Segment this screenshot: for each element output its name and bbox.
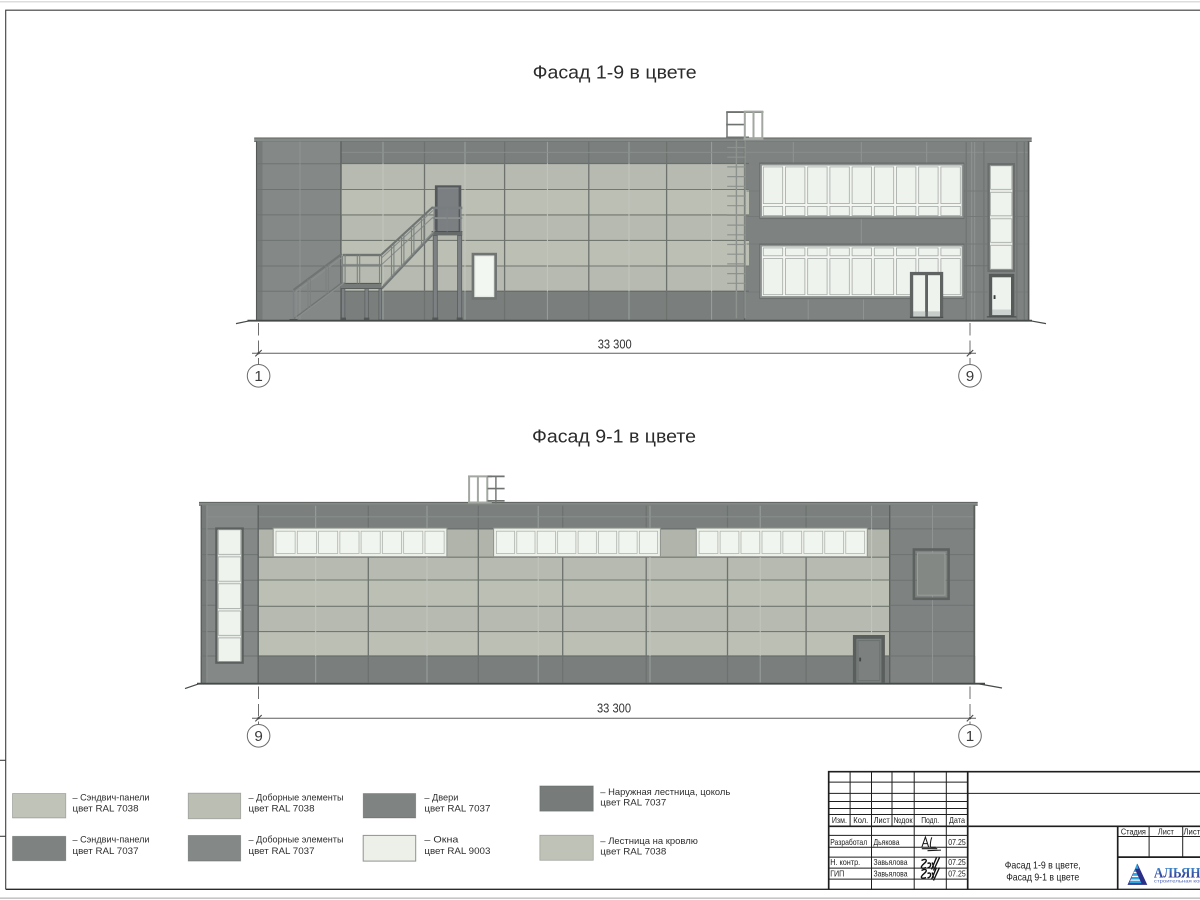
svg-text:Дьякова: Дьякова [874, 838, 900, 847]
svg-text:– Доборные элементы: – Доборные элементы [249, 792, 344, 802]
svg-text:Кол.: Кол. [853, 815, 868, 825]
svg-text:Лист: Лист [1158, 826, 1174, 836]
svg-text:Подп.: Подп. [921, 815, 939, 825]
svg-text:Фасад 1-9 в цвете: Фасад 1-9 в цвете [533, 61, 697, 82]
svg-text:Стадия: Стадия [1121, 826, 1146, 836]
svg-text:цвет RAL 7038: цвет RAL 7038 [249, 804, 315, 814]
svg-text:цвет RAL 7037: цвет RAL 7037 [600, 798, 666, 808]
svg-text:– Сэндвич-панели: – Сэндвич-панели [73, 792, 150, 802]
svg-text:07.25: 07.25 [948, 858, 966, 867]
svg-text:Изм.: Изм. [832, 815, 847, 825]
svg-text:№док: №док [894, 815, 913, 825]
svg-text:цвет RAL 7038: цвет RAL 7038 [600, 847, 666, 857]
svg-text:Фасад 9-1 в цвете: Фасад 9-1 в цвете [1006, 873, 1079, 884]
svg-text:Разработал: Разработал [830, 838, 867, 847]
svg-text:цвет RAL 7038: цвет RAL 7038 [73, 804, 139, 814]
svg-text:цвет RAL 9003: цвет RAL 9003 [424, 846, 490, 856]
svg-text:– Наружная лестница, цоколь: – Наружная лестница, цоколь [600, 787, 730, 797]
svg-text:– Сэндвич-панели: – Сэндвич-панели [73, 835, 150, 845]
svg-text:– Лестница на кровлю: – Лестница на кровлю [600, 836, 698, 846]
svg-text:07.25: 07.25 [948, 870, 966, 879]
svg-text:ГИП: ГИП [830, 870, 844, 879]
svg-text:33 300: 33 300 [598, 336, 632, 351]
svg-text:1: 1 [254, 368, 262, 385]
svg-text:33 300: 33 300 [597, 701, 631, 716]
svg-text:9: 9 [254, 728, 262, 745]
svg-text:– Доборные элементы: – Доборные элементы [249, 835, 344, 845]
svg-text:цвет RAL 7037: цвет RAL 7037 [249, 846, 315, 856]
svg-text:1: 1 [966, 728, 974, 745]
svg-text:Листов: Листов [1184, 826, 1200, 836]
svg-text:Завьялова: Завьялова [874, 870, 908, 879]
svg-text:строительная компания: строительная компания [1154, 880, 1200, 885]
svg-text:– Двери: – Двери [424, 792, 458, 802]
svg-text:Завьялова: Завьялова [874, 858, 908, 867]
svg-text:Лист: Лист [874, 815, 890, 825]
svg-text:Дата: Дата [949, 815, 965, 825]
svg-text:Фасад 1-9 в цвете,: Фасад 1-9 в цвете, [1005, 861, 1081, 872]
svg-text:Н. контр.: Н. контр. [830, 858, 860, 867]
svg-text:07.25: 07.25 [948, 838, 966, 847]
svg-text:– Окна: – Окна [424, 835, 459, 845]
svg-text:цвет RAL 7037: цвет RAL 7037 [424, 804, 490, 814]
svg-text:9: 9 [966, 368, 974, 385]
svg-text:Фасад 9-1 в цвете: Фасад 9-1 в цвете [532, 425, 696, 446]
svg-text:цвет RAL 7037: цвет RAL 7037 [73, 846, 139, 856]
